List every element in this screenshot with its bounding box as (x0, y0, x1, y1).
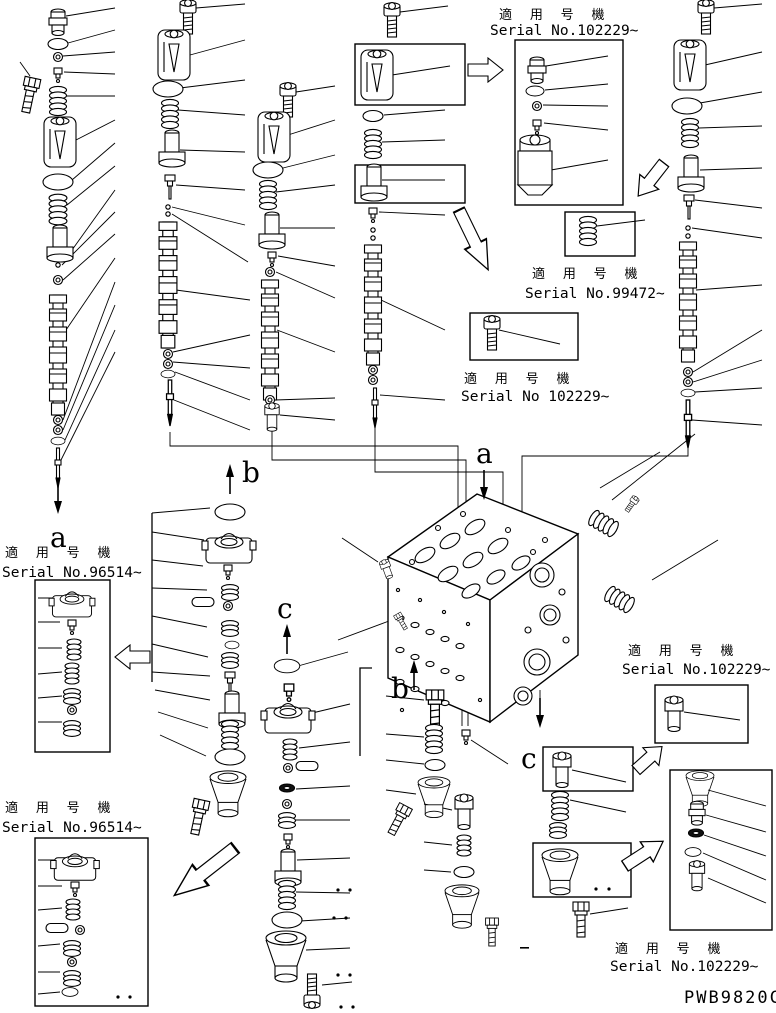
center-box-parts (484, 316, 500, 350)
detail-box-spring (565, 212, 635, 256)
reference-arrows (115, 58, 673, 906)
label-right-upper-serial: Serial No.99472~ (525, 286, 665, 302)
column-1-parts (18, 9, 76, 488)
serial-labels: 適 用 号 機 Serial No.102229~ 適 用 号 機 Serial… (2, 7, 771, 975)
section-arrow-a1-down (54, 484, 62, 514)
label-left-bottom-jp: 適 用 号 機 (5, 800, 115, 816)
right-middle-box-parts (665, 696, 683, 732)
parts-diagram-page: 適 用 号 機 Serial No.102229~ 適 用 号 機 Serial… (0, 0, 776, 1013)
label-top-right-jp: 適 用 号 機 (499, 7, 609, 23)
b2-column-parts (385, 690, 499, 946)
arrow-to-left-bottom-box (166, 838, 243, 906)
block-diagonal-spring-1 (587, 509, 621, 538)
right-bottom-box-parts (685, 771, 714, 891)
arrow-to-left-middle-box (115, 645, 150, 669)
left-middle-box-parts (49, 592, 95, 737)
top-right-box-parts (518, 57, 552, 195)
marker-c2: c (521, 742, 537, 775)
marker-a1: a (50, 521, 67, 554)
section-arrow-c2-down (536, 698, 544, 728)
arrow-to-spring-box (629, 156, 674, 204)
label-right-bottom-jp: 適 用 号 機 (615, 941, 725, 957)
label-right-middle-serial: Serial No.102229~ (622, 662, 771, 678)
valve-block (379, 494, 640, 722)
label-right-bottom-serial: Serial No.102229~ (610, 959, 759, 975)
column-4-parts (361, 3, 400, 428)
arrow-to-right-middle-box (628, 738, 670, 779)
arrow-to-top-right-box (468, 58, 503, 82)
label-top-right-serial: Serial No.102229~ (490, 23, 639, 39)
detail-boxes (35, 40, 772, 1006)
block-diagonal-bolt (624, 495, 640, 514)
label-left-middle-serial: Serial No.96514~ (2, 565, 142, 581)
section-arrow-b1-up (226, 464, 234, 494)
label-right-middle-jp: 適 用 号 機 (628, 643, 738, 659)
arrow-to-center-box (448, 205, 499, 275)
c1-column-parts (261, 659, 320, 1008)
c2-group-parts (542, 752, 589, 937)
bracket-b-column-parts (187, 504, 256, 836)
right-column-parts (580, 0, 715, 448)
marker-a2: a (476, 437, 493, 470)
diagram-svg: 適 用 号 機 Serial No.102229~ 適 用 号 機 Serial… (0, 0, 776, 1013)
left-bottom-box-parts (46, 854, 99, 997)
column-3-parts (253, 83, 296, 432)
label-center-jp: 適 用 号 機 (464, 371, 574, 387)
label-left-bottom-serial: Serial No.96514~ (2, 820, 142, 836)
section-arrow-c1-up (283, 624, 291, 654)
continuation-dots (116, 887, 610, 1008)
marker-c1: c (277, 592, 293, 625)
block-diagonal-spring-2 (603, 585, 637, 614)
arrow-to-right-bottom-box (618, 831, 669, 876)
marker-b2: b (391, 672, 409, 705)
label-center-serial: Serial No 102229~ (461, 389, 610, 405)
drawing-code: PWB9820C (684, 988, 776, 1008)
marker-b1: b (242, 456, 260, 489)
label-right-upper-jp: 適 用 号 機 (532, 266, 642, 282)
